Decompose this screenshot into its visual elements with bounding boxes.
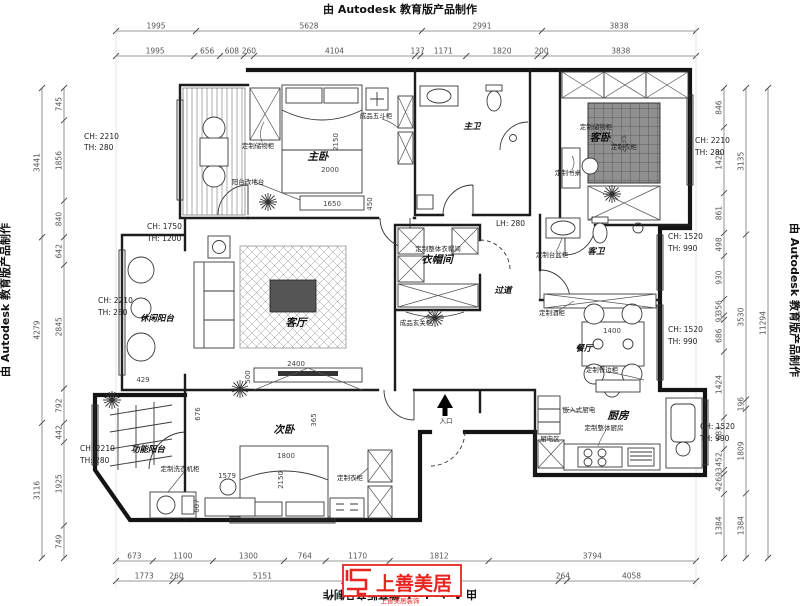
sofa (194, 262, 234, 348)
plan-dim: 676 (194, 407, 202, 421)
dim-label: 356 (715, 300, 724, 315)
plant-icon (103, 391, 121, 409)
ann-ch: CH: 2210 (80, 444, 115, 453)
ann-ch: CH: 2210 (84, 132, 119, 141)
room-label-living: 客厅 (286, 316, 309, 329)
gbath-toilet (593, 223, 607, 243)
furnlabel: 定制酒柜 (539, 308, 566, 317)
dim-label: 5151 (253, 572, 272, 581)
dim-label: 1925 (55, 474, 64, 493)
plan-dim: 2150 (332, 133, 340, 151)
room-label-guest: 客卧 (590, 131, 612, 144)
dim-label: 1424 (715, 375, 724, 394)
furnlabel: 定制台盆柜 (536, 250, 569, 259)
ann-th: TH: 280 (83, 143, 114, 152)
balcony-chair (127, 333, 155, 361)
dim-chain-top-inner: 19956566082604104137117118202003838 (113, 47, 699, 60)
furnlabel: 嵌入式厨电 (563, 405, 596, 414)
dim-label: 749 (55, 534, 64, 549)
plan-dim: 429 (136, 376, 149, 384)
ann-ch: CH: 2210 (695, 136, 730, 145)
dim-chain-left-inner: 745185684064228457924421925749 (55, 85, 68, 561)
dim-chain-right-mid: 3135353019618091384 (737, 85, 750, 561)
plan-dim: 2400 (287, 360, 305, 368)
dim-label: 4058 (622, 572, 641, 581)
dim-label: 3794 (583, 552, 602, 561)
dim-label: 93 (715, 467, 724, 477)
watermark-top: 由 Autodesk 教育版产品制作 (323, 2, 477, 16)
ann-th: TH: 990 (699, 434, 730, 443)
logo-tagline: 上善美居装饰 (381, 596, 421, 605)
coffee-table (270, 280, 316, 312)
furnlabel: 定制衣柜 (337, 473, 364, 482)
room-label-func-balcony: 功能阳台 (131, 444, 166, 455)
plan-dim: 1650 (323, 200, 341, 208)
dim-label: 200 (534, 47, 549, 56)
dim-label: 1856 (55, 151, 64, 170)
dim-label: 2991 (472, 22, 491, 31)
room-label-kitchen: 厨房 (607, 409, 630, 422)
dim-label: 764 (298, 552, 313, 561)
dim-label: 745 (55, 97, 64, 112)
dim-label: 3838 (609, 22, 628, 31)
room-label-entry: 入口 (440, 417, 453, 425)
plan-dim: 607 (193, 499, 201, 512)
dim-label: 264 (556, 572, 571, 581)
floorplan-canvas: 由 Autodesk 教育版产品制作 由 Autodesk 教育版产品制作 由 … (0, 0, 800, 606)
plan-dim: 500 (244, 370, 252, 383)
room-label-leisure-balcony: 休闲阳台 (140, 313, 175, 324)
furnlabel: 定制储物柜 (242, 141, 275, 150)
logo-brand-text: 上善美居 (376, 572, 452, 595)
ann-th: TH: 990 (667, 244, 698, 253)
furnlabel: 定制整体衣帽间 (415, 244, 461, 253)
room-label-hall: 过道 (494, 285, 513, 296)
dim-label: 93 (715, 313, 724, 323)
dim-label: 1995 (146, 22, 165, 31)
dim-label: 5628 (299, 22, 318, 31)
plan-dim: 1579 (218, 472, 236, 480)
dim-label: 260 (169, 572, 184, 581)
dim-label: 3441 (33, 153, 42, 172)
furniture (103, 72, 702, 518)
ann-th: TH: 280 (97, 308, 128, 317)
dim-label: 1384 (737, 516, 746, 535)
dim-label: 673 (127, 552, 142, 561)
plan-dim: 365 (310, 413, 318, 426)
dim-label: 196 (737, 397, 746, 412)
ann-ch: CH: 1520 (700, 422, 735, 431)
dim-label: 3135 (737, 152, 746, 171)
appliance-cabinet (538, 396, 560, 434)
dim-label: 1170 (348, 552, 367, 561)
watermark-left: 由 Autodesk 教育版产品制作 (0, 223, 12, 377)
ann-th: TH: 280 (694, 148, 725, 157)
mbath-toilet (487, 91, 501, 111)
dim-chain-left-outer: 344142793116 (33, 85, 46, 561)
dim-label: 2845 (55, 317, 64, 336)
entry-arrow (437, 394, 453, 416)
dim-label: 608 (225, 47, 240, 56)
plan-dim: 2150 (277, 471, 285, 489)
furnlabel: 定制书桌 (555, 168, 582, 177)
room-label-appliance-zone: 厨电区 (540, 434, 560, 443)
dim-label: 11294 (759, 311, 768, 335)
dim-label: 840 (55, 212, 64, 227)
dim-label: 3838 (611, 47, 630, 56)
dim-label: 846 (715, 100, 724, 115)
second-desk (205, 498, 255, 516)
furnlabel: 定制整体厨房 (585, 423, 624, 432)
ann-ch: CH: 1750 (147, 222, 182, 231)
dim-label: 686 (715, 328, 724, 343)
room-label-master-bath: 主卫 (463, 121, 482, 132)
balcony-chair (128, 257, 154, 283)
ann-th: TH: 990 (667, 337, 698, 346)
room-label-dining: 餐厅 (575, 343, 594, 354)
dim-label: 642 (55, 244, 64, 259)
dim-label: 260 (242, 47, 257, 56)
ann-ch: CH: 2210 (98, 296, 133, 305)
plant-icon (259, 193, 277, 211)
dim-label: 442 (55, 425, 64, 440)
plan-dim: 1800 (277, 452, 295, 460)
watermark-right: 由 Autodesk 教育版产品制作 (788, 223, 800, 377)
dim-label: 137 (410, 47, 425, 56)
room-label-guest-bath: 客卫 (587, 246, 606, 257)
furnlabel: 成品玄关柜 (400, 318, 433, 327)
dim-label: 656 (200, 47, 215, 56)
plan-dim: 2000 (321, 166, 339, 174)
room-label-cloak: 衣帽间 (421, 253, 454, 266)
furnlabel: 阳台改地台 (232, 177, 265, 186)
dim-label: 426 (715, 477, 724, 492)
dim-chain-bottom-inner: 67311001300764117018123794 (113, 552, 699, 565)
dim-label: 4104 (325, 47, 344, 56)
dim-label: 3530 (737, 307, 746, 326)
dim-label: 861 (715, 206, 724, 221)
dim-label: 1995 (146, 47, 165, 56)
dim-label: 792 (55, 398, 64, 413)
guest-desk (562, 148, 580, 188)
furnlabel: 定制储物柜 (580, 122, 613, 131)
ann-ch: CH: 1520 (668, 232, 703, 241)
dim-label: 4279 (33, 320, 42, 339)
dim-label: 1812 (430, 552, 449, 561)
floorplan-page: 由 Autodesk 教育版产品制作 由 Autodesk 教育版产品制作 由 … (0, 0, 800, 606)
ann-th: TH: 1200 (146, 234, 181, 243)
ann-lh: LH: 280 (496, 219, 525, 228)
furnlabel: 定制洗衣机柜 (161, 464, 201, 473)
dim-chain-top-outer: 1995562829913838 (113, 22, 699, 35)
furnlabel: 成品五斗柜 (360, 111, 393, 120)
dim-label: 1809 (737, 441, 746, 460)
dim-label: 1820 (492, 47, 511, 56)
ann-ch: CH: 1520 (668, 325, 703, 334)
dim-label: 1171 (434, 47, 453, 56)
dim-label: 452 (715, 452, 724, 467)
plan-dim: 1400 (603, 327, 621, 335)
room-label-master: 主卧 (308, 150, 330, 163)
dim-label: 1100 (173, 552, 192, 561)
plan-dim: 450 (366, 197, 374, 210)
room-label-second: 次卧 (274, 423, 296, 436)
dim-chain-right-outer: 11294 (759, 85, 772, 561)
ann-th: TH: 280 (79, 456, 110, 465)
furnlabel: 定制餐边柜 (586, 365, 619, 374)
dim-label: 1300 (239, 552, 258, 561)
dim-label: 498 (715, 237, 724, 252)
dim-label: 3116 (33, 481, 42, 500)
dim-label: 1773 (135, 572, 154, 581)
dim-label: 1384 (715, 516, 724, 535)
plan-dim: 2135 (620, 135, 628, 153)
dim-label: 930 (715, 270, 724, 285)
